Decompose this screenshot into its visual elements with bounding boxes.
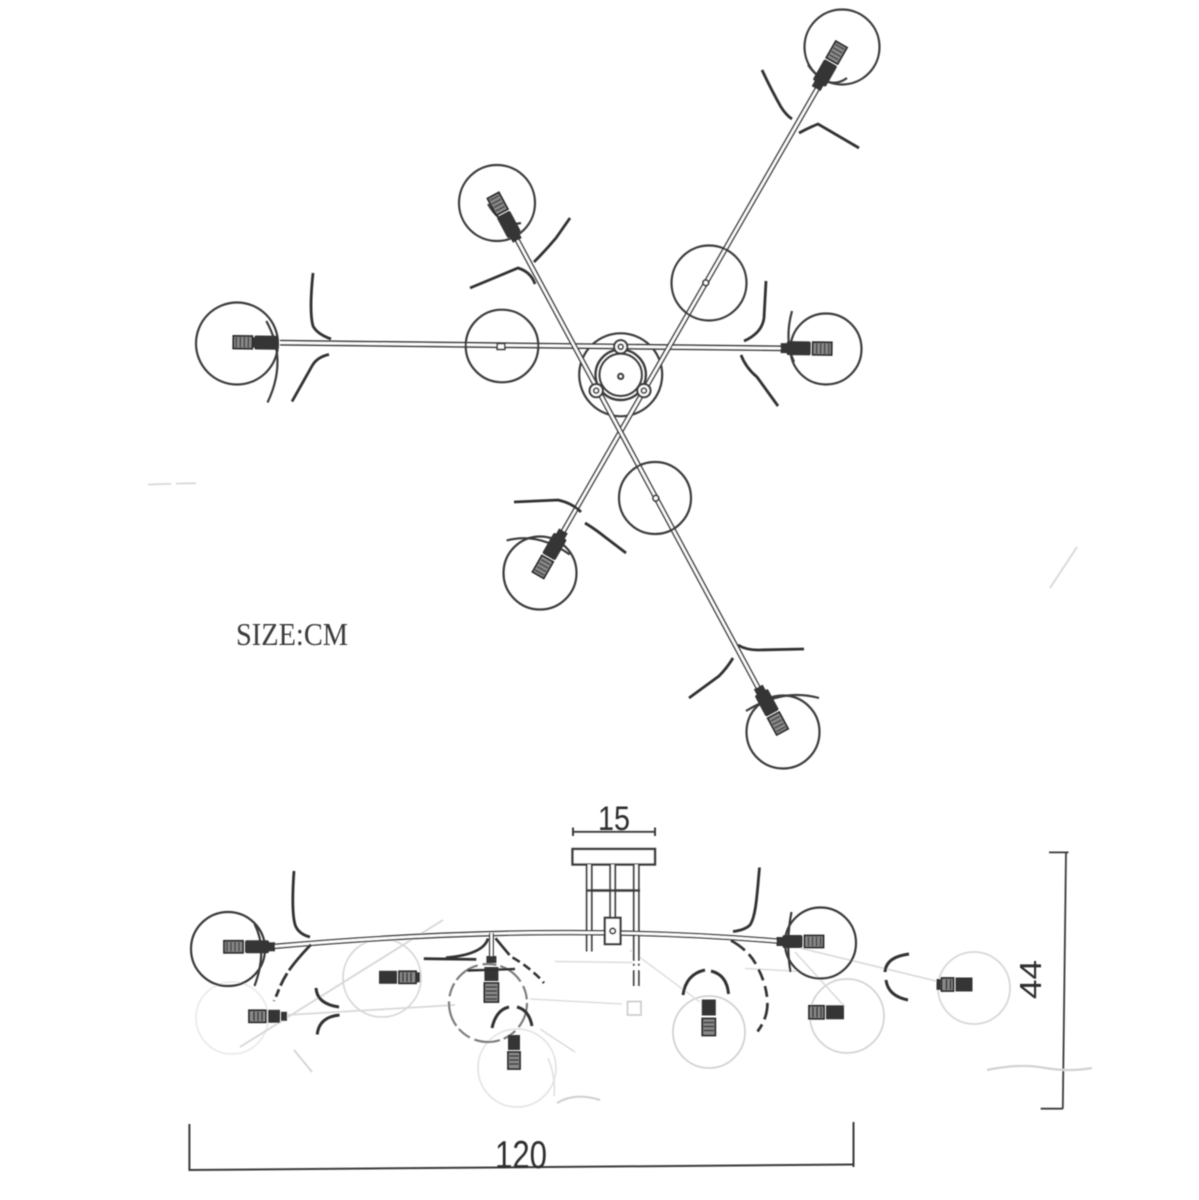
svg-text:44: 44 — [1013, 960, 1048, 999]
svg-text:120: 120 — [495, 1134, 547, 1177]
svg-text:15: 15 — [598, 800, 630, 838]
svg-text:SIZE:CM: SIZE:CM — [236, 616, 348, 652]
